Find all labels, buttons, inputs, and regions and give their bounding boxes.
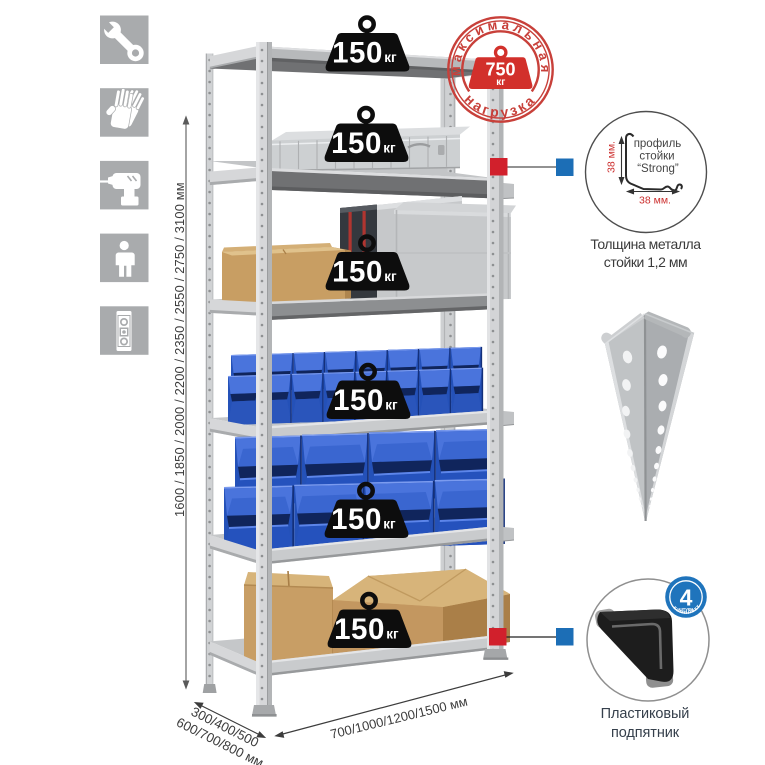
svg-text:кг: кг xyxy=(383,517,396,532)
svg-text:150: 150 xyxy=(333,384,384,417)
svg-text:150: 150 xyxy=(331,503,382,536)
svg-text:150: 150 xyxy=(332,37,383,70)
svg-text:кг: кг xyxy=(386,627,399,642)
svg-text:стойки: стойки xyxy=(639,151,674,163)
svg-text:кг: кг xyxy=(496,77,505,88)
svg-text:150: 150 xyxy=(331,127,382,160)
svg-text:“Strong”: “Strong” xyxy=(637,163,679,175)
svg-text:профиль: профиль xyxy=(634,138,682,150)
svg-text:стойки 1,2 мм: стойки 1,2 мм xyxy=(604,254,687,270)
svg-text:Пластиковый: Пластиковый xyxy=(601,706,690,722)
svg-text:кг: кг xyxy=(384,269,397,284)
svg-text:кг: кг xyxy=(384,50,397,65)
svg-text:1600 / 1850 / 2000 / 2200 / 23: 1600 / 1850 / 2000 / 2200 / 2350 / 2550 … xyxy=(172,182,187,517)
svg-text:кг: кг xyxy=(385,398,398,413)
svg-text:150: 150 xyxy=(332,256,383,289)
svg-text:Толщина металла: Толщина металла xyxy=(590,236,701,252)
svg-text:150: 150 xyxy=(334,613,385,646)
svg-text:кг: кг xyxy=(383,141,396,156)
svg-text:38 мм.: 38 мм. xyxy=(639,195,671,207)
svg-text:подпятник: подпятник xyxy=(611,725,680,741)
svg-text:38 мм.: 38 мм. xyxy=(606,141,618,173)
